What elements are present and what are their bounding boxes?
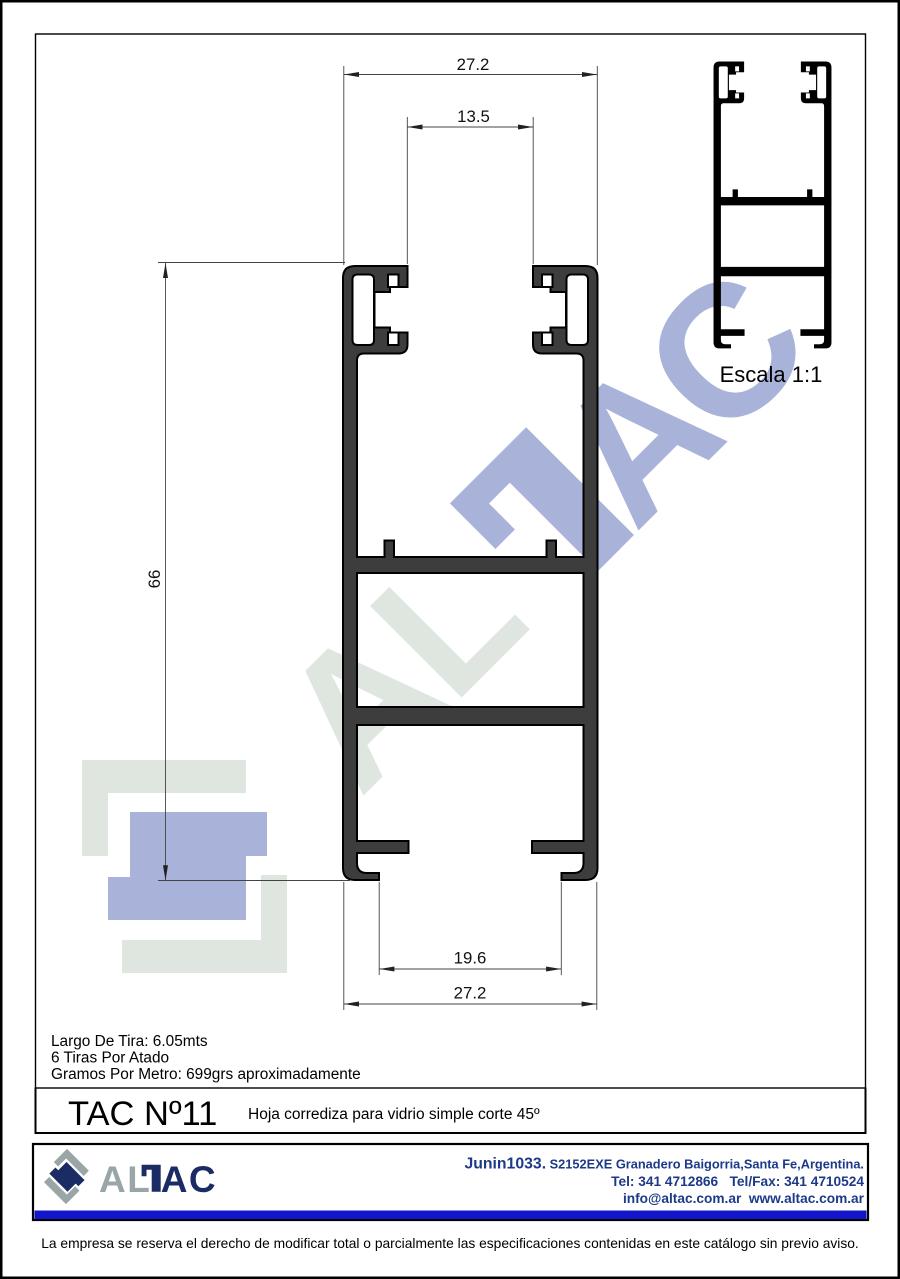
- svg-text:Junin1033. S2152EXE Granadero: Junin1033. S2152EXE Granadero Baigorria,…: [464, 1156, 864, 1173]
- svg-text:TAC Nº11: TAC Nº11: [68, 1095, 217, 1133]
- svg-text:Escala 1:1: Escala 1:1: [720, 362, 823, 387]
- svg-text:Tel: 341 4712866 Tel/Fax: 34: Tel: 341 4712866 Tel/Fax: 341 4710524: [611, 1174, 864, 1189]
- svg-text:La empresa se reserva el derec: La empresa se reserva el derecho de modi…: [41, 1236, 859, 1251]
- svg-text:Gramos Por Metro: 699grs aprox: Gramos Por Metro: 699grs aproximadamente: [51, 1066, 361, 1083]
- svg-text:Largo De Tira: 6.05mts: Largo De Tira: 6.05mts: [51, 1033, 208, 1050]
- svg-text:AC: AC: [161, 1159, 217, 1200]
- svg-text:27.2: 27.2: [457, 55, 490, 74]
- svg-text:66: 66: [145, 570, 164, 589]
- svg-text:13.5: 13.5: [457, 107, 490, 126]
- svg-text:Hoja corrediza para vidrio sim: Hoja corrediza para vidrio simple corte …: [248, 1106, 540, 1123]
- svg-text:27.2: 27.2: [454, 984, 487, 1003]
- svg-text:19.6: 19.6: [454, 949, 487, 968]
- svg-text:6 Tiras Por Atado: 6 Tiras Por Atado: [51, 1050, 169, 1067]
- svg-text:info@altac.com.ar www.altac.c: info@altac.com.ar www.altac.com.ar: [623, 1191, 865, 1206]
